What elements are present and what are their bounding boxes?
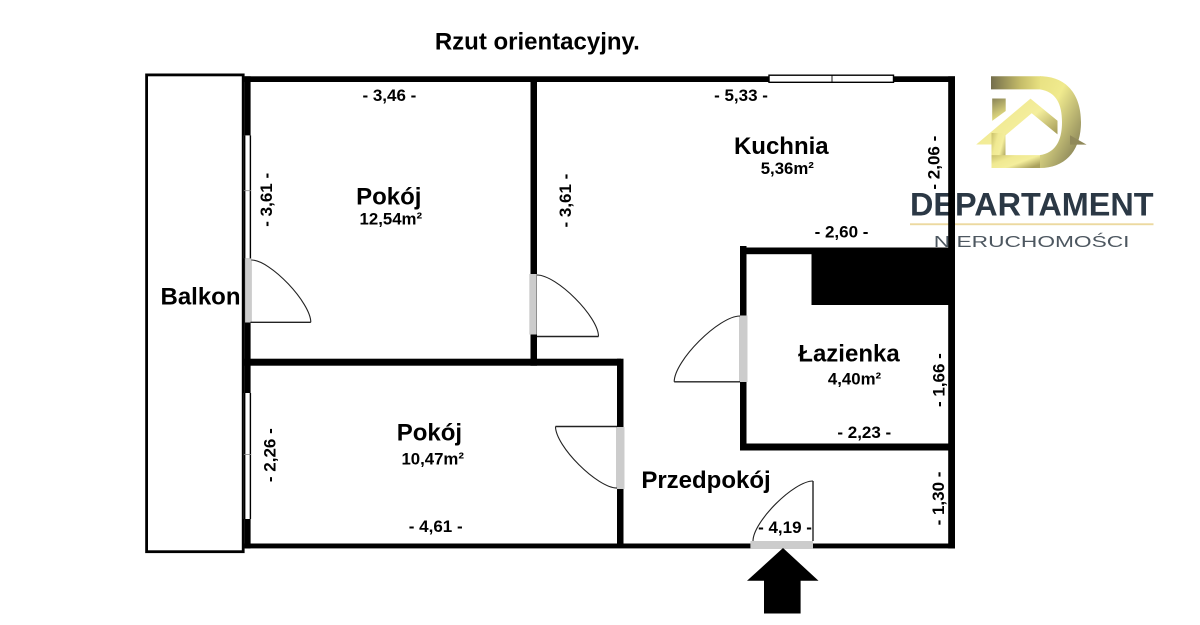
svg-text:- 5,33 -: - 5,33 -: [714, 86, 768, 105]
svg-text:- 1,66 -: - 1,66 -: [930, 353, 949, 407]
svg-text:4,40m²: 4,40m²: [828, 370, 882, 389]
svg-text:- 4,61 -: - 4,61 -: [409, 517, 463, 536]
svg-text:- 2,26 -: - 2,26 -: [261, 428, 280, 482]
svg-text:- 2,06 -: - 2,06 -: [925, 136, 944, 190]
svg-text:Łazienka: Łazienka: [798, 341, 900, 368]
svg-text:NIERUCHOMOŚCI: NIERUCHOMOŚCI: [934, 233, 1130, 251]
svg-text:- 1,30 -: - 1,30 -: [929, 472, 948, 526]
svg-text:12,54m²: 12,54m²: [360, 210, 423, 229]
svg-text:- 3,61 -: - 3,61 -: [556, 174, 575, 228]
svg-text:- 3,61 -: - 3,61 -: [257, 173, 276, 227]
svg-text:Pokój: Pokój: [356, 184, 421, 211]
svg-text:10,47m²: 10,47m²: [401, 450, 464, 469]
svg-text:DEPARTAMENT: DEPARTAMENT: [910, 186, 1154, 222]
svg-text:- 2,60 -: - 2,60 -: [815, 223, 869, 242]
svg-text:Przedpokój: Przedpokój: [641, 467, 770, 494]
svg-text:Pokój: Pokój: [397, 420, 462, 447]
svg-text:Balkon: Balkon: [160, 284, 240, 311]
svg-text:Kuchnia: Kuchnia: [734, 133, 829, 160]
svg-text:5,36m²: 5,36m²: [761, 159, 815, 178]
svg-text:- 3,46 -: - 3,46 -: [362, 86, 416, 105]
svg-text:- 2,23 -: - 2,23 -: [837, 423, 891, 442]
svg-text:- 4,19 -: - 4,19 -: [758, 518, 812, 537]
svg-text:Rzut orientacyjny.: Rzut orientacyjny.: [435, 28, 640, 55]
